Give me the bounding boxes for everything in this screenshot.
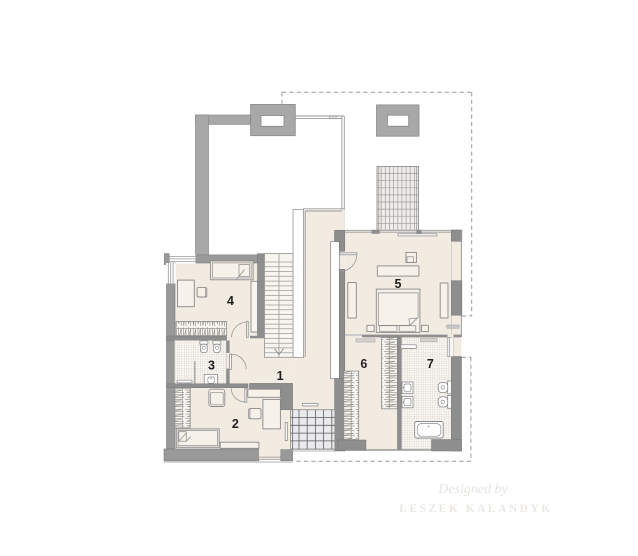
svg-text:LESZEK KALANDYK: LESZEK KALANDYK <box>399 503 552 515</box>
svg-text:Designed by: Designed by <box>437 482 508 497</box>
svg-text:7: 7 <box>427 357 434 371</box>
svg-text:6: 6 <box>360 357 367 371</box>
svg-text:4: 4 <box>227 294 234 308</box>
svg-text:5: 5 <box>395 277 402 291</box>
svg-text:2: 2 <box>232 417 239 431</box>
svg-text:3: 3 <box>208 358 215 372</box>
svg-text:1: 1 <box>277 369 284 383</box>
